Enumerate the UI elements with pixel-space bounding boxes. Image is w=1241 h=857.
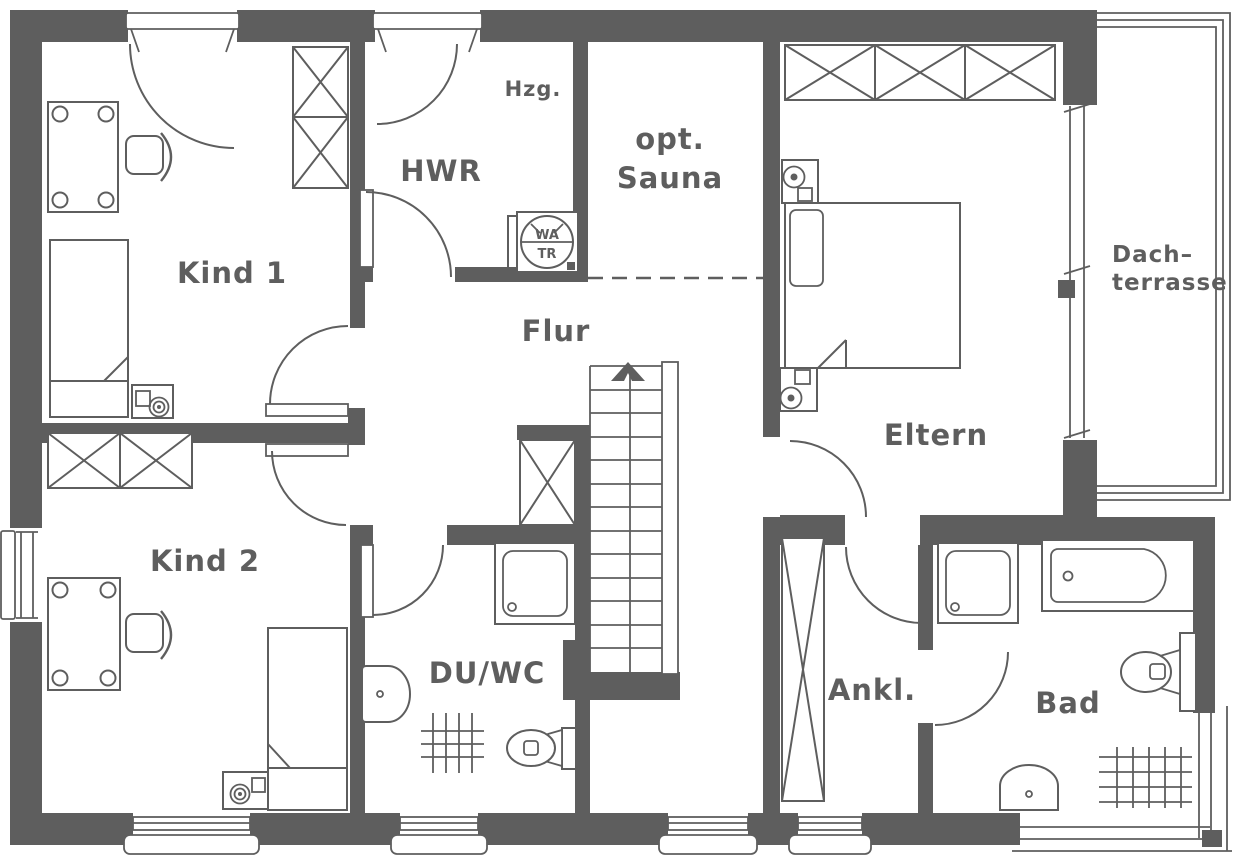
room-label-sauna-line2: Sauna [617,161,723,195]
stairs [590,362,678,674]
door-duwc [361,545,443,617]
nightstand-eltern-top-icon [782,160,818,203]
bed-eltern-icon [785,203,960,368]
bathtub-icon [1042,540,1194,611]
washbasin-bad-icon [1000,765,1058,810]
room-label-eltern: Eltern [884,418,988,452]
desk-kind1-icon [48,102,118,212]
wardrobe-ankl-icon [782,538,824,801]
room-label-sauna-line1: opt. [635,122,705,156]
washer-dryer-icon: WA TR [508,212,578,272]
floor-drain-bad-icon [1099,747,1192,808]
washbasin-duwc-icon [362,666,410,722]
window-hwr-top [373,13,482,124]
room-label-hzg: Hzg. [505,77,562,101]
wardrobe-kind2-icon [48,433,192,488]
shower-duwc-icon [495,543,575,624]
window-eltern-terrace [1064,104,1090,438]
desk-kind2-icon [48,578,120,690]
door-bad [935,652,1008,725]
room-label-terrace-line2: terrasse [1112,270,1228,296]
dryer-label: TR [538,247,557,262]
bed-kind1-icon [50,240,128,417]
nightstand-kind1-icon [132,385,173,418]
room-label-hwr: HWR [400,154,482,188]
window-duwc-bottom [391,817,487,854]
bed-kind2-icon [268,628,347,810]
stairs-handrail [662,362,678,674]
window-post [1058,280,1075,298]
door-hwr [360,190,451,277]
shower-bad-icon [938,543,1018,623]
wardrobe-kind1-icon [293,47,348,188]
window-flur-bottom [659,817,757,854]
door-kind1 [266,326,348,416]
room-label-ankl: Ankl. [828,673,916,707]
nightstand-kind2-icon [223,772,268,809]
floor-plan-page: WA TR [0,0,1241,857]
nightstand-eltern-bottom-icon [780,368,817,411]
door-eltern [790,441,866,517]
wardrobe-eltern-icon [785,45,1055,100]
chair-kind1-icon [126,133,171,181]
room-label-kind2: Kind 2 [150,544,260,578]
stairs-direction-arrow-icon [611,362,645,381]
floor-drain-duwc-icon [421,713,484,773]
toilet-duwc-icon [507,728,576,769]
chair-kind2-icon [126,611,171,659]
window-ankl-bottom [789,817,871,854]
door-ankl [846,547,922,623]
room-label-kind1: Kind 1 [177,256,287,290]
window-kind1-top [126,13,239,148]
room-label-duwc: DU/WC [429,656,545,690]
toilet-bad-icon [1121,633,1196,711]
window-kind2-left [1,531,38,619]
room-label-terrace-line1: Dach– [1112,242,1193,268]
closet-flur-icon [520,440,575,525]
window-kind2-bottom [124,817,259,854]
door-kind2 [266,444,348,525]
floor-plan-drawing: WA TR [0,0,1241,857]
washer-label: WA [535,228,559,243]
room-label-flur: Flur [522,314,591,348]
room-label-bad: Bad [1035,686,1100,720]
